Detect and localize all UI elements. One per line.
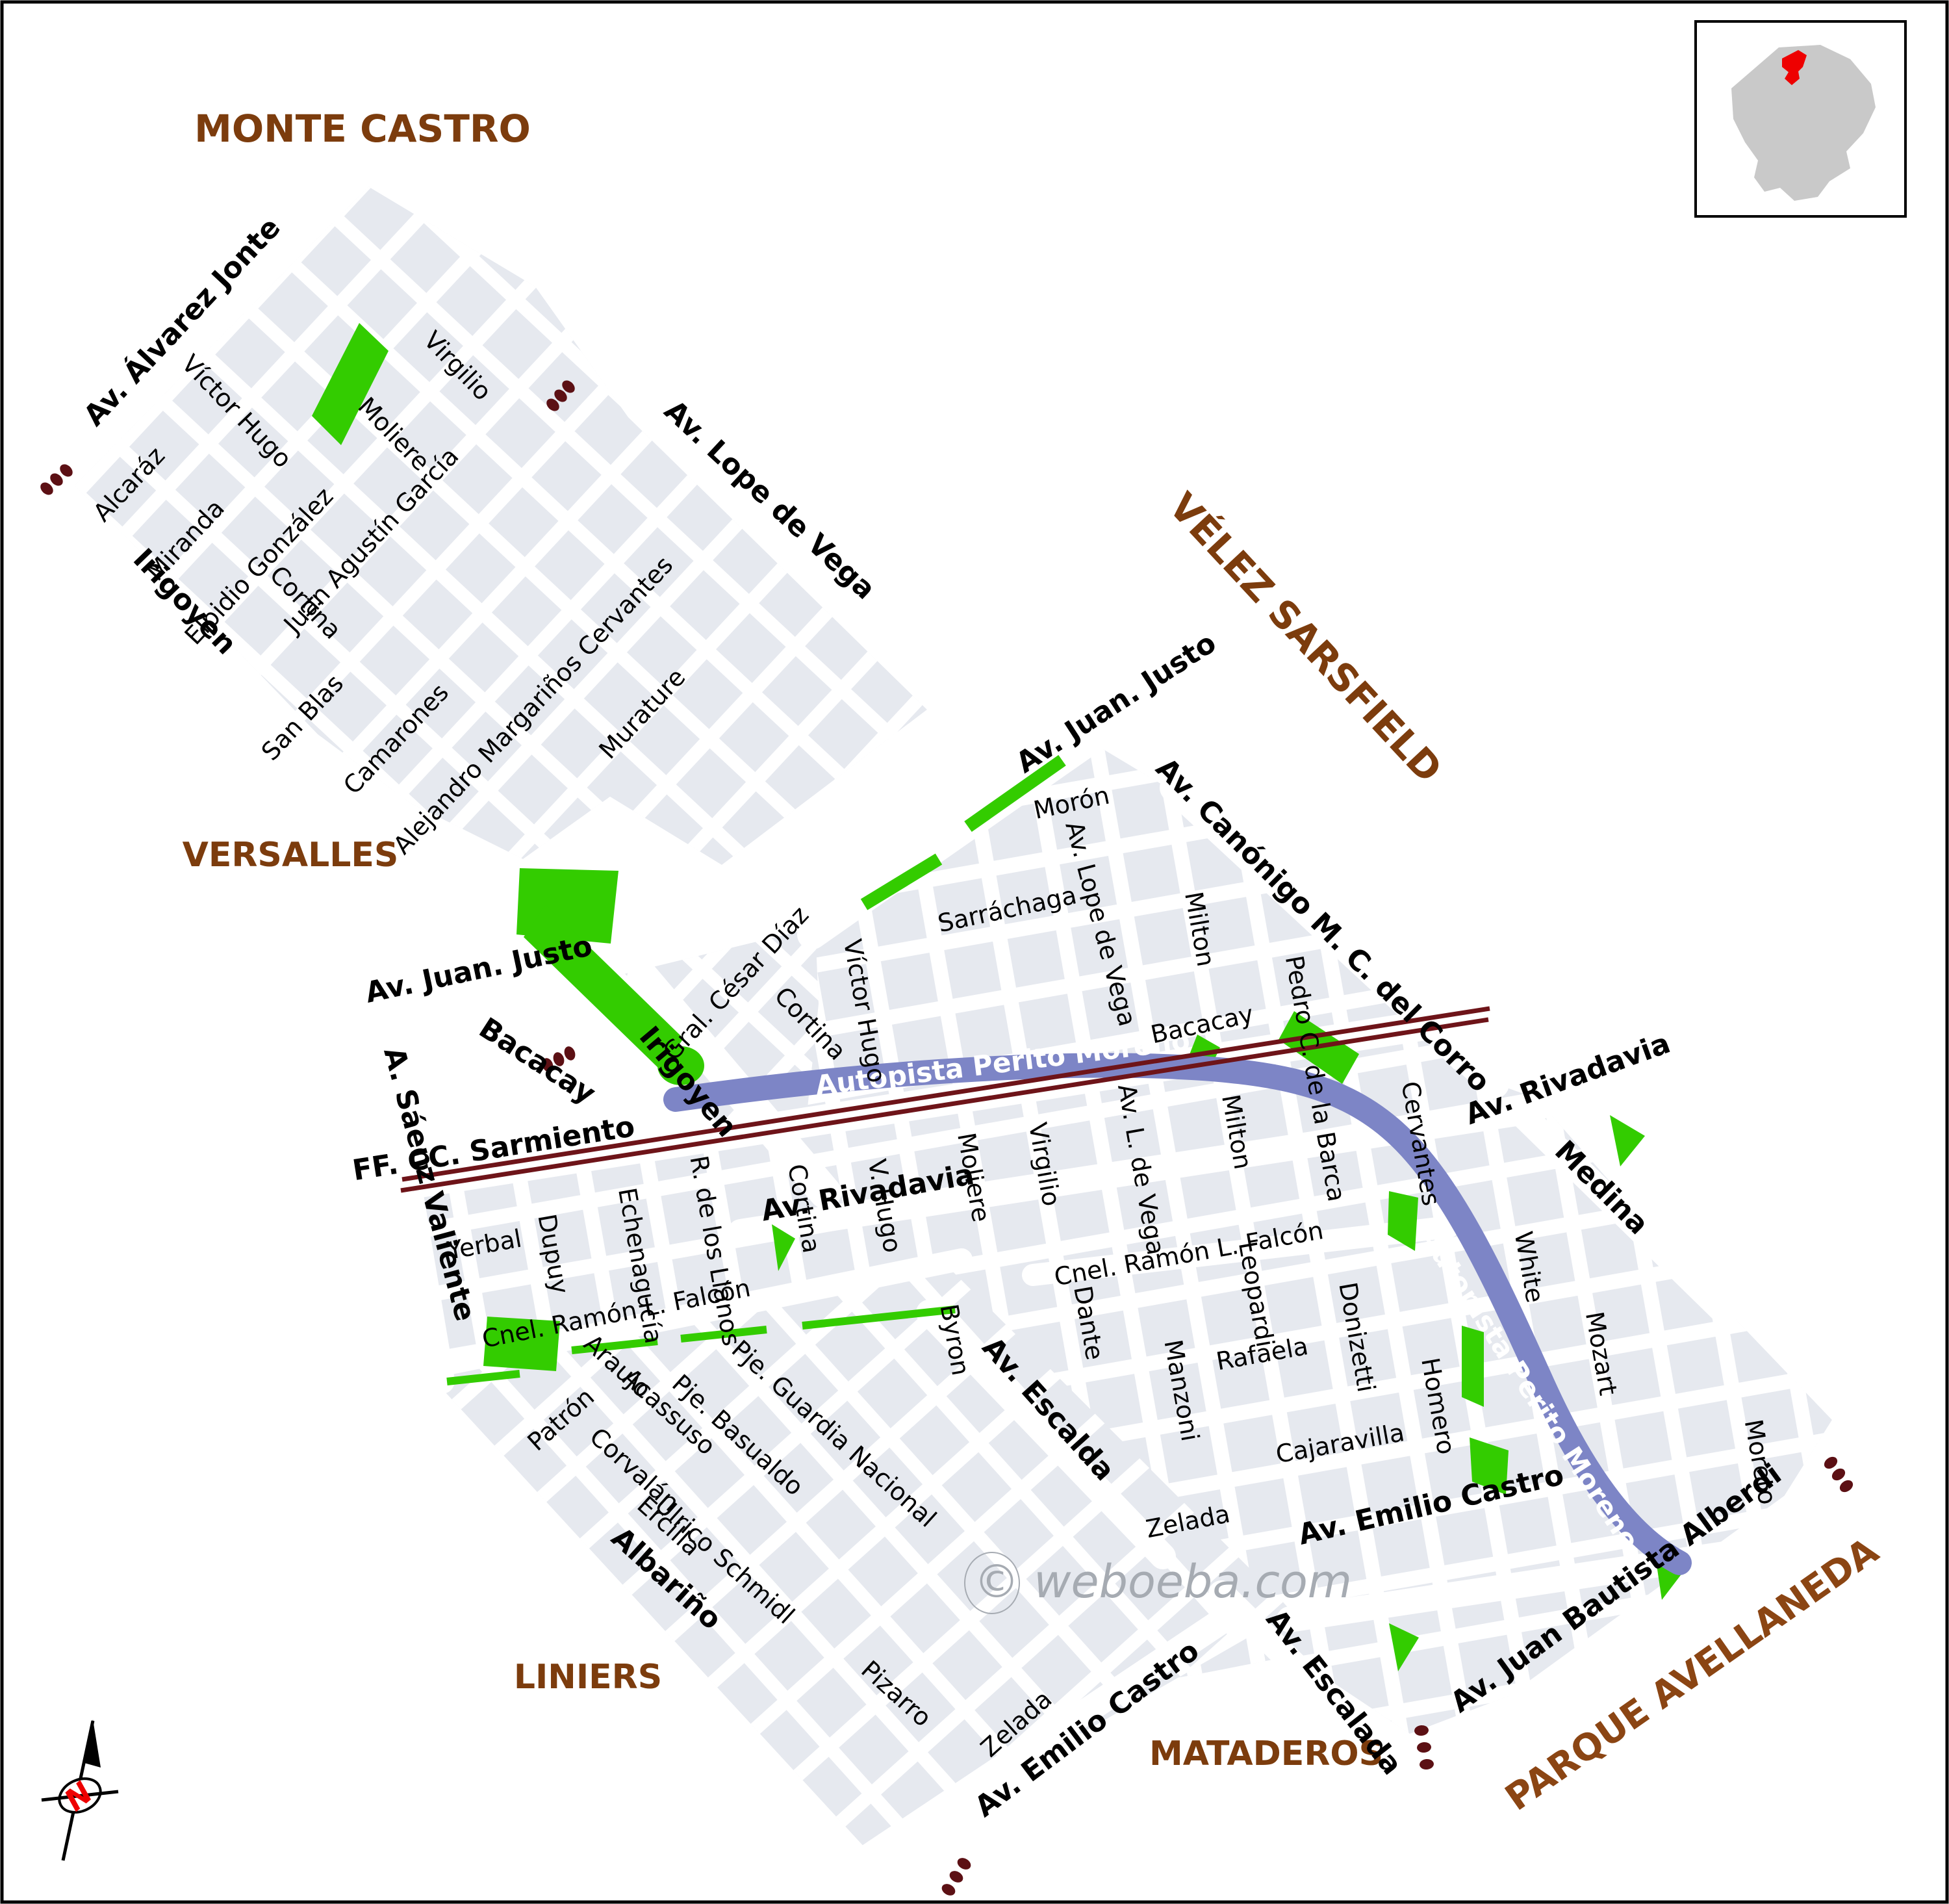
street-line [0,0,29,1904]
park-rivadavia-triangle [1610,1115,1645,1166]
edge-dot [1822,1454,1839,1471]
edge-dot [939,1882,957,1898]
street-line [0,0,283,1904]
street-line [1850,0,1949,1904]
watermark: © weboeba.com [965,1552,1352,1614]
street-line [0,0,92,1904]
street-line [0,1821,1949,1904]
edge-dot [947,1869,965,1885]
edge-dot [1416,1742,1431,1753]
street-line [1913,0,1949,1904]
street-line [0,0,156,1904]
inset-locator-map [1696,21,1905,216]
map-canvas: MONTE CASTROVÉLEZ SARSFIELDVERSALLESLINI… [0,0,1949,1904]
inset-map [1696,21,1905,216]
edge-dot [955,1856,973,1872]
street-label: Av. Juan. Justo [1010,626,1222,780]
neighborhood-label: MATADEROS [1149,1734,1383,1773]
watermark-text: © weboeba.com [974,1555,1352,1608]
edge-dot [1829,1466,1847,1483]
neighborhood-label: LINIERS [514,1658,662,1697]
neighborhood-label: MONTE CASTRO [194,107,531,151]
street-label: Bacacay [473,1011,601,1111]
street-line [1786,0,1949,1904]
street-line [0,0,1949,190]
map-page: MONTE CASTROVÉLEZ SARSFIELDVERSALLESLINI… [0,0,1949,1904]
street-line [0,0,219,1904]
neighborhood-label: VERSALLES [183,836,399,875]
street-line [0,0,1949,64]
compass-north-icon: N [42,1719,118,1860]
edge-dot [1837,1478,1855,1495]
